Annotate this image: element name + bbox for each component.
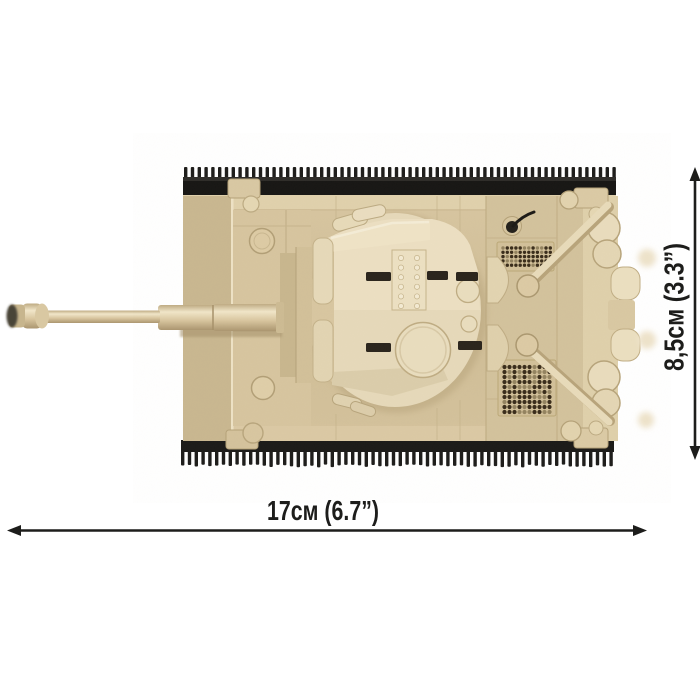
- svg-text:17см (6.7”): 17см (6.7”): [267, 495, 379, 526]
- svg-text:8,5см (3.3”): 8,5см (3.3”): [658, 243, 689, 371]
